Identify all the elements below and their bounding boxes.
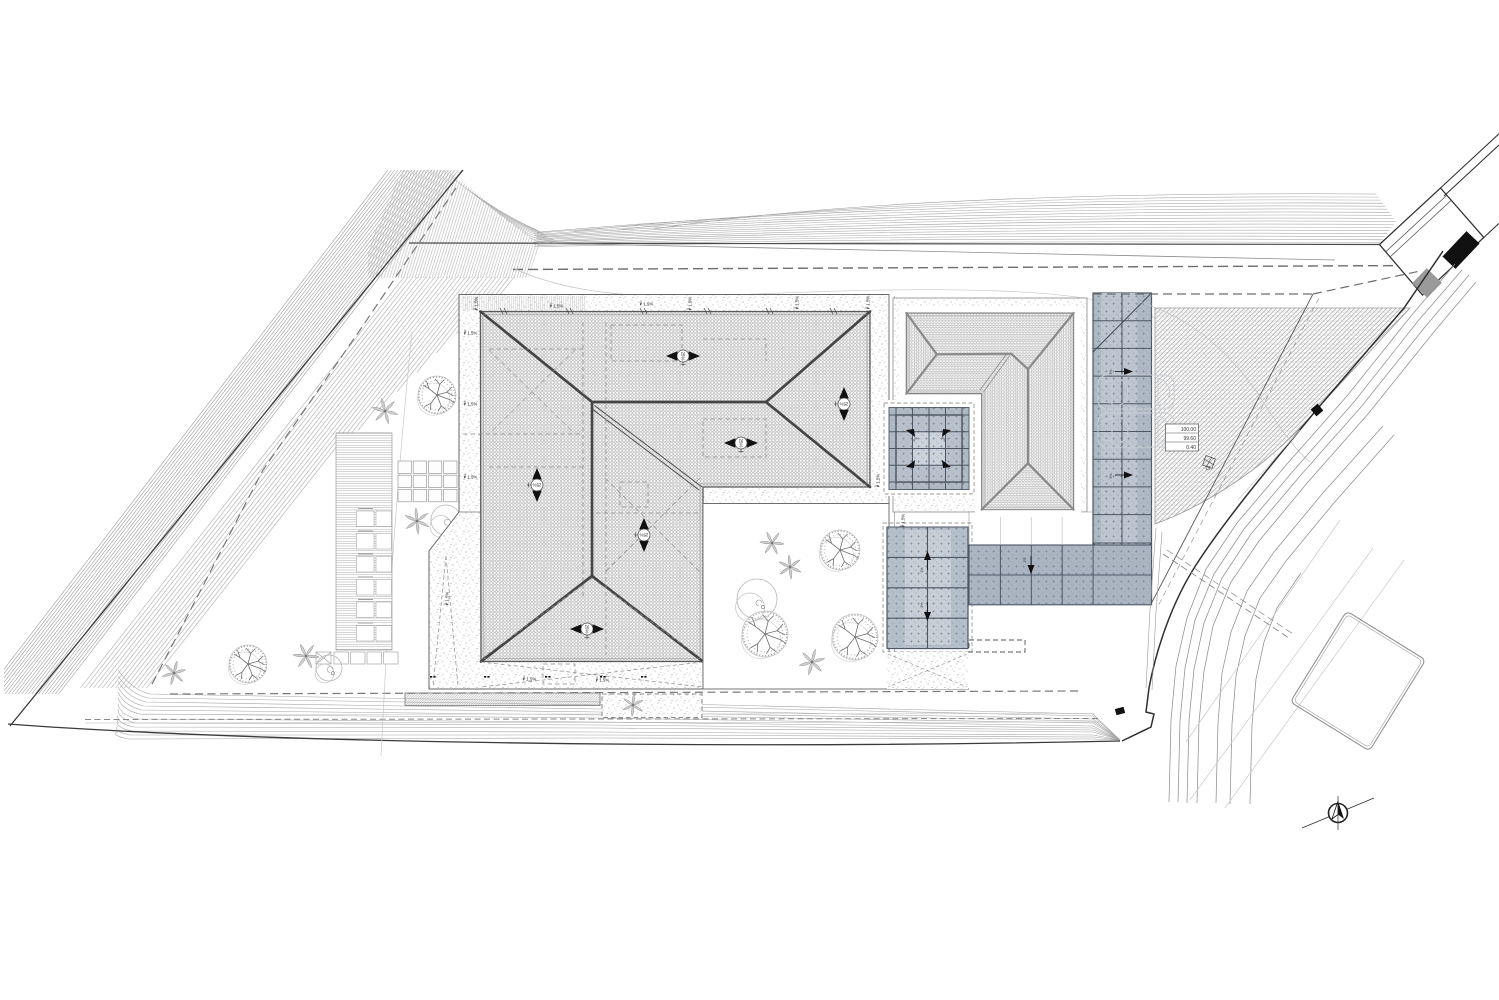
svg-text:0.40: 0.40 xyxy=(1186,445,1196,451)
svg-text:1.5%: 1.5% xyxy=(467,475,477,480)
svg-text:1.5%: 1.5% xyxy=(467,402,477,407)
svg-text:2%: 2% xyxy=(920,603,924,608)
svg-text:5%: 5% xyxy=(1109,474,1113,479)
svg-text:25%: 25% xyxy=(680,352,685,361)
svg-text:1.5%: 1.5% xyxy=(866,296,871,306)
svg-text:2%: 2% xyxy=(1023,558,1027,563)
svg-text:25%: 25% xyxy=(640,532,649,537)
svg-text:2%: 2% xyxy=(920,568,924,573)
svg-text:25%: 25% xyxy=(738,439,743,448)
svg-text:1.5%: 1.5% xyxy=(901,514,906,524)
svg-text:1.5%: 1.5% xyxy=(876,474,881,484)
svg-text:1.5%: 1.5% xyxy=(526,677,536,682)
svg-text:25%: 25% xyxy=(840,401,849,406)
svg-text:1.5%: 1.5% xyxy=(553,304,563,309)
svg-text:99.60: 99.60 xyxy=(1183,436,1196,442)
svg-text:1.5%: 1.5% xyxy=(474,297,479,307)
svg-text:5%: 5% xyxy=(1109,370,1113,375)
svg-text:1.5%: 1.5% xyxy=(643,302,653,307)
svg-text:1.5%: 1.5% xyxy=(467,331,477,336)
svg-text:1.5%: 1.5% xyxy=(688,297,693,307)
svg-text:25%: 25% xyxy=(584,625,589,634)
svg-text:1.5%: 1.5% xyxy=(445,592,450,602)
svg-text:1.5%: 1.5% xyxy=(599,678,609,683)
svg-text:1.5%: 1.5% xyxy=(795,296,800,306)
svg-text:100.00: 100.00 xyxy=(1181,427,1197,433)
svg-text:25%: 25% xyxy=(533,482,542,487)
